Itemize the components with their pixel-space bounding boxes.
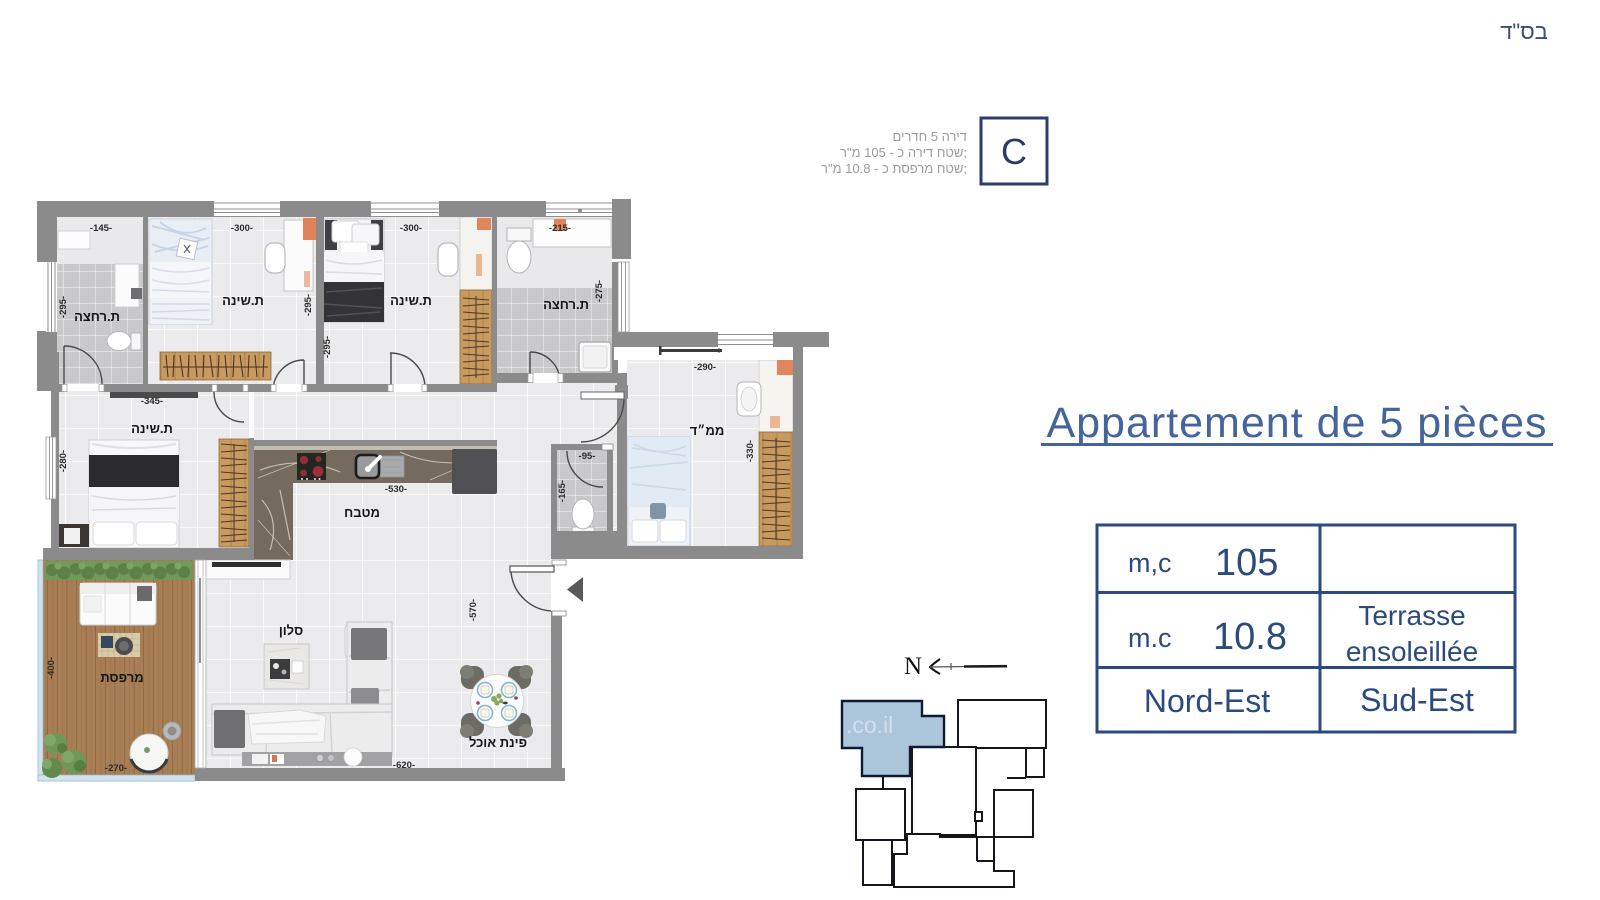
svg-text:Terrasse: Terrasse xyxy=(1358,600,1465,631)
svg-text:-400-: -400- xyxy=(46,657,57,679)
svg-text:-145-: -145- xyxy=(90,223,112,234)
svg-text:-530-: -530- xyxy=(385,484,407,495)
svg-text:C: C xyxy=(1001,131,1027,172)
svg-text:מטבח: מטבח xyxy=(344,505,380,520)
svg-text:-165-: -165- xyxy=(557,480,568,502)
svg-text:סלון: סלון xyxy=(279,623,303,638)
svg-text:-275-: -275- xyxy=(594,280,605,302)
svg-text:שטח מרפסת כ - 10.8 מ"ר;: שטח מרפסת כ - 10.8 מ"ר; xyxy=(821,161,967,176)
svg-text:ת.רחצה: ת.רחצה xyxy=(74,309,120,324)
svg-text:-295-: -295- xyxy=(303,294,314,316)
svg-text:-300-: -300- xyxy=(400,223,422,234)
svg-text:ת.שינה: ת.שינה xyxy=(390,293,432,308)
svg-text:Sud-Est: Sud-Est xyxy=(1360,682,1474,718)
svg-text:מרפסת: מרפסת xyxy=(100,670,143,685)
svg-text:דירה 5 חדרים: דירה 5 חדרים xyxy=(893,129,968,144)
svg-text:N: N xyxy=(904,653,922,680)
svg-text:ממ״ד: ממ״ד xyxy=(690,423,725,438)
svg-text:ת.שינה: ת.שינה xyxy=(222,293,264,308)
svg-text:ת.רחצה: ת.רחצה xyxy=(543,297,589,312)
svg-text:-330-: -330- xyxy=(745,440,756,462)
svg-text:ת.שינה: ת.שינה xyxy=(131,421,173,436)
svg-text:.co.il: .co.il xyxy=(846,712,893,738)
svg-text:פינת אוכל: פינת אוכל xyxy=(469,735,527,750)
svg-text:-215-: -215- xyxy=(549,223,571,234)
svg-text:-295-: -295- xyxy=(58,296,69,318)
svg-text:-570-: -570- xyxy=(468,599,479,621)
svg-text:בס"ד: בס"ד xyxy=(1500,19,1548,44)
svg-text:-290-: -290- xyxy=(694,362,716,373)
svg-text:-300-: -300- xyxy=(231,223,253,234)
svg-text:Nord-Est: Nord-Est xyxy=(1144,683,1270,719)
svg-text:Appartement de 5 pièces: Appartement de 5 pièces xyxy=(1046,399,1547,447)
svg-text:-620-: -620- xyxy=(393,760,415,771)
svg-text:-295-: -295- xyxy=(322,336,333,358)
svg-text:10.8: 10.8 xyxy=(1213,616,1287,658)
svg-text:-95-: -95- xyxy=(579,451,596,462)
svg-text:שטח דירה כ - 105 מ"ר;: שטח דירה כ - 105 מ"ר; xyxy=(840,145,967,160)
svg-text:-270-: -270- xyxy=(105,763,127,774)
svg-text:m,c: m,c xyxy=(1128,548,1172,578)
svg-text:105: 105 xyxy=(1215,542,1278,584)
svg-text:-345-: -345- xyxy=(141,396,163,407)
svg-text:-280-: -280- xyxy=(58,450,69,472)
svg-text:m.c: m.c xyxy=(1128,623,1172,653)
svg-text:ensoleillée: ensoleillée xyxy=(1346,636,1478,667)
